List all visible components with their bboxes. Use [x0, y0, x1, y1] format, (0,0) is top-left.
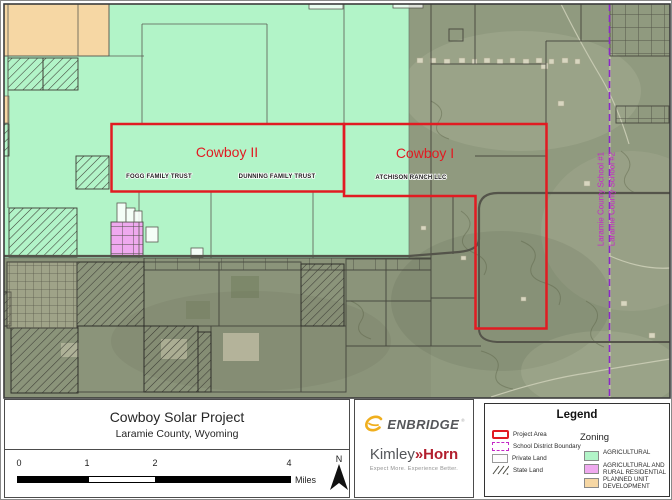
enbridge-trademark: ®	[461, 418, 464, 423]
legend: Legend Project Area School District Boun…	[484, 403, 670, 497]
title-block: Cowboy Solar Project Laramie County, Wyo…	[4, 399, 350, 450]
subdivision-parcels	[7, 262, 77, 328]
school-district-swatch-icon	[492, 442, 509, 451]
scale-tick-4: 4	[286, 458, 291, 468]
north-label: N	[327, 454, 351, 464]
enbridge-swirl-icon	[363, 414, 385, 434]
atchison-ranch-label: ATCHISON RANCH LLC	[375, 175, 447, 181]
legend-title: Legend	[485, 409, 669, 421]
school-district-1-label: Laramie County School #1	[597, 151, 606, 246]
ag-rural-residential-swatch-icon	[584, 464, 599, 474]
cowboy-i-label: Cowboy I	[396, 145, 454, 161]
planned-unit-development-swatch-icon	[584, 478, 599, 488]
zoning-item-label: AGRICULTURAL AND RURAL RESIDENTIAL	[603, 463, 667, 477]
enbridge-logo: ENBRIDGE ®	[355, 414, 473, 434]
school-district-2-label: Laramie County School #2	[608, 151, 617, 246]
map-exhibit-page: Laramie County School #1 Laramie County …	[0, 0, 672, 500]
private-land-swatch-icon	[492, 454, 508, 463]
legend-item-private-land: Private Land	[492, 454, 547, 463]
zoning-item-ag-rural-residential: AGRICULTURAL AND RURAL RESIDENTIAL	[584, 463, 667, 477]
kimley-chevrons-icon: »	[415, 446, 423, 463]
zoning-item-agricultural: AGRICULTURAL	[584, 450, 667, 461]
scale-unit-label: Miles	[295, 475, 316, 485]
scale-tick-2: 2	[152, 458, 157, 468]
zoning-item-label: PLANNED UNIT DEVELOPMENT	[603, 477, 667, 491]
kimley-wordmark-part1: Kimley	[370, 446, 415, 463]
legend-item-label: Private Land	[512, 455, 547, 462]
state-land-hatch-icon	[492, 465, 509, 475]
map-canvas: Laramie County School #1 Laramie County …	[1, 1, 672, 399]
legend-item-school-district: School District Boundary	[492, 442, 581, 451]
dunning-family-trust-label: DUNNING FAMILY TRUST	[239, 174, 316, 180]
legend-item-label: School District Boundary	[513, 443, 581, 450]
north-arrow-icon	[330, 464, 348, 491]
scale-tick-1: 1	[84, 458, 89, 468]
kimley-horn-tagline: Expect More. Experience Better.	[355, 466, 473, 472]
map-title: Cowboy Solar Project	[5, 409, 349, 425]
project-area-swatch-icon	[492, 430, 509, 439]
zoning-item-label: AGRICULTURAL	[603, 450, 667, 457]
fogg-family-trust-label: FOGG FAMILY TRUST	[126, 174, 192, 180]
cowboy-ii-label: Cowboy II	[196, 144, 258, 160]
kimley-wordmark-part2: Horn	[423, 446, 458, 463]
map-subtitle: Laramie County, Wyoming	[5, 428, 349, 440]
scale-tick-0: 0	[16, 458, 21, 468]
zoning-section-title: Zoning	[580, 432, 609, 443]
enbridge-wordmark: ENBRIDGE	[387, 417, 459, 432]
kimley-horn-logo: Kimley»Horn	[355, 446, 473, 463]
legend-item-label: Project Area	[513, 431, 547, 438]
legend-item-state-land: State Land	[492, 465, 543, 475]
scale-bar	[17, 476, 291, 483]
legend-item-label: State Land	[513, 467, 543, 474]
zoning-item-planned-unit-development: PLANNED UNIT DEVELOPMENT	[584, 477, 667, 491]
planned-unit-development-zone	[4, 4, 109, 56]
legend-item-project-area: Project Area	[492, 430, 547, 439]
scale-bar-block: 0 1 2 4 Miles N	[4, 449, 350, 498]
logos-block: ENBRIDGE ® Kimley»Horn Expect More. Expe…	[354, 399, 474, 498]
agricultural-swatch-icon	[584, 451, 599, 461]
north-arrow: N	[327, 454, 351, 496]
